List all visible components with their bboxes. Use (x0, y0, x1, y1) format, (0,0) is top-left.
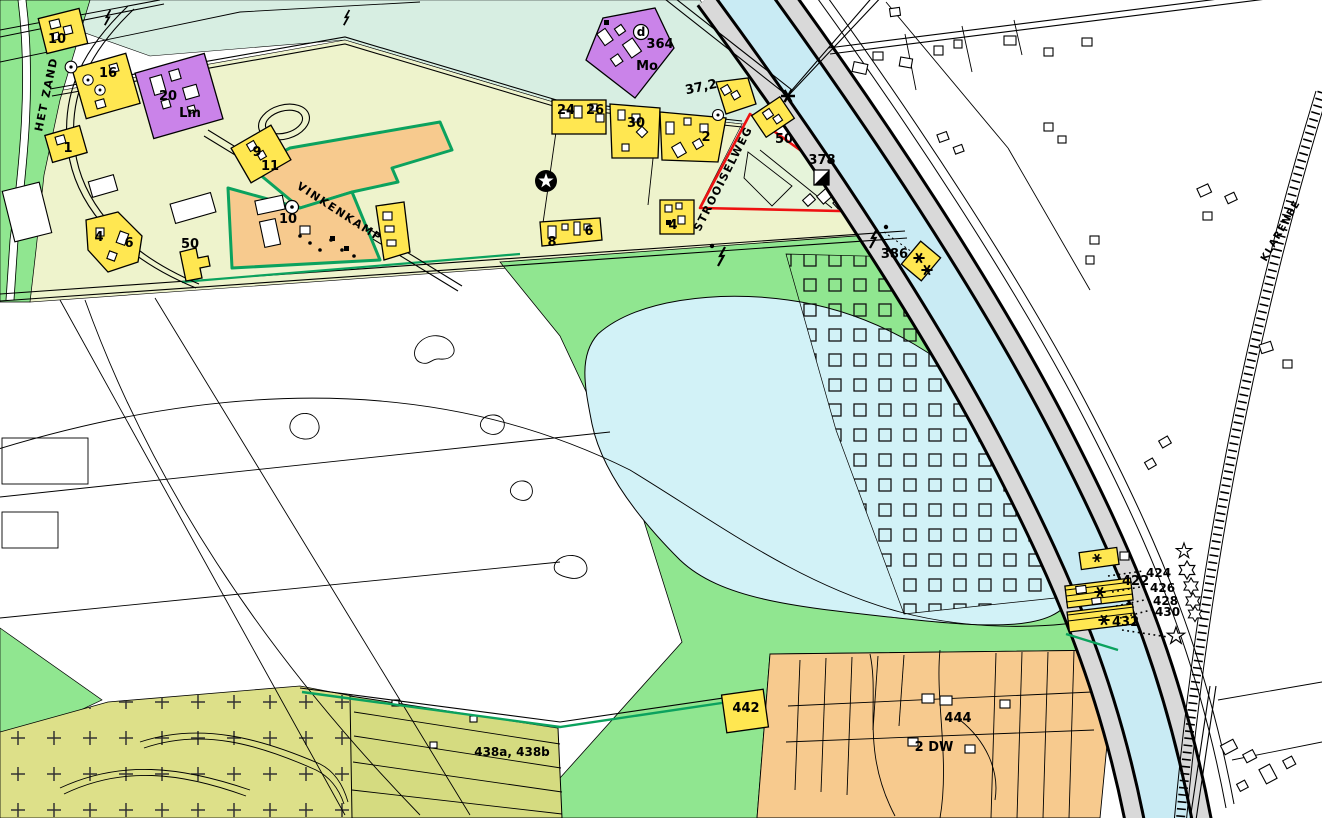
label-364: 364 (646, 37, 673, 52)
half-square-icon (814, 170, 829, 185)
label-386: 386 (881, 247, 908, 262)
label-20: 20 (159, 89, 177, 104)
label-11: 11 (261, 159, 279, 174)
label-438ab: 438a, 438b (474, 745, 550, 759)
label-lm: Lm (179, 106, 201, 121)
label-50-strooiselweg: 50 (775, 132, 793, 147)
star-circle-icon (535, 170, 557, 192)
label-430: 430 (1155, 605, 1180, 619)
label-8: 8 (547, 235, 556, 250)
zoning-map-canvas[interactable]: d HET ZAND VINKENKAMP STROOISELWEG KLARE… (0, 0, 1322, 818)
circle-d-letter: d (637, 25, 646, 39)
circle-dot-icon (65, 61, 77, 73)
label-424: 424 (1146, 566, 1171, 580)
label-378: 378 (808, 153, 835, 168)
label-24: 24 (557, 103, 575, 118)
label-mo: Mo (636, 59, 658, 74)
label-10-topleft: 10 (48, 32, 66, 47)
label-1: 1 (63, 141, 72, 156)
label-30: 30 (627, 116, 645, 131)
label-9: 9 (252, 145, 261, 160)
label-426: 426 (1150, 581, 1175, 595)
label-4-left: 4 (94, 230, 103, 245)
label-50-left: 50 (181, 237, 199, 252)
label-10-vinkenkamp: 10 (279, 212, 297, 227)
label-442: 442 (732, 701, 759, 716)
label-4-mid: 4 (668, 218, 677, 233)
label-444: 444 (944, 711, 971, 726)
parcel-30 (610, 104, 660, 158)
label-2dw: 2 DW (915, 740, 954, 755)
zone-campsite-orange (757, 650, 1116, 818)
map-viewport[interactable]: d HET ZAND VINKENKAMP STROOISELWEG KLARE… (0, 0, 1322, 818)
label-6-left: 6 (124, 236, 133, 251)
label-6-mid: 6 (584, 224, 593, 239)
label-432: 432 (1112, 615, 1139, 630)
label-16: 16 (99, 66, 117, 81)
label-2: 2 (701, 130, 710, 145)
label-26: 26 (586, 103, 604, 118)
